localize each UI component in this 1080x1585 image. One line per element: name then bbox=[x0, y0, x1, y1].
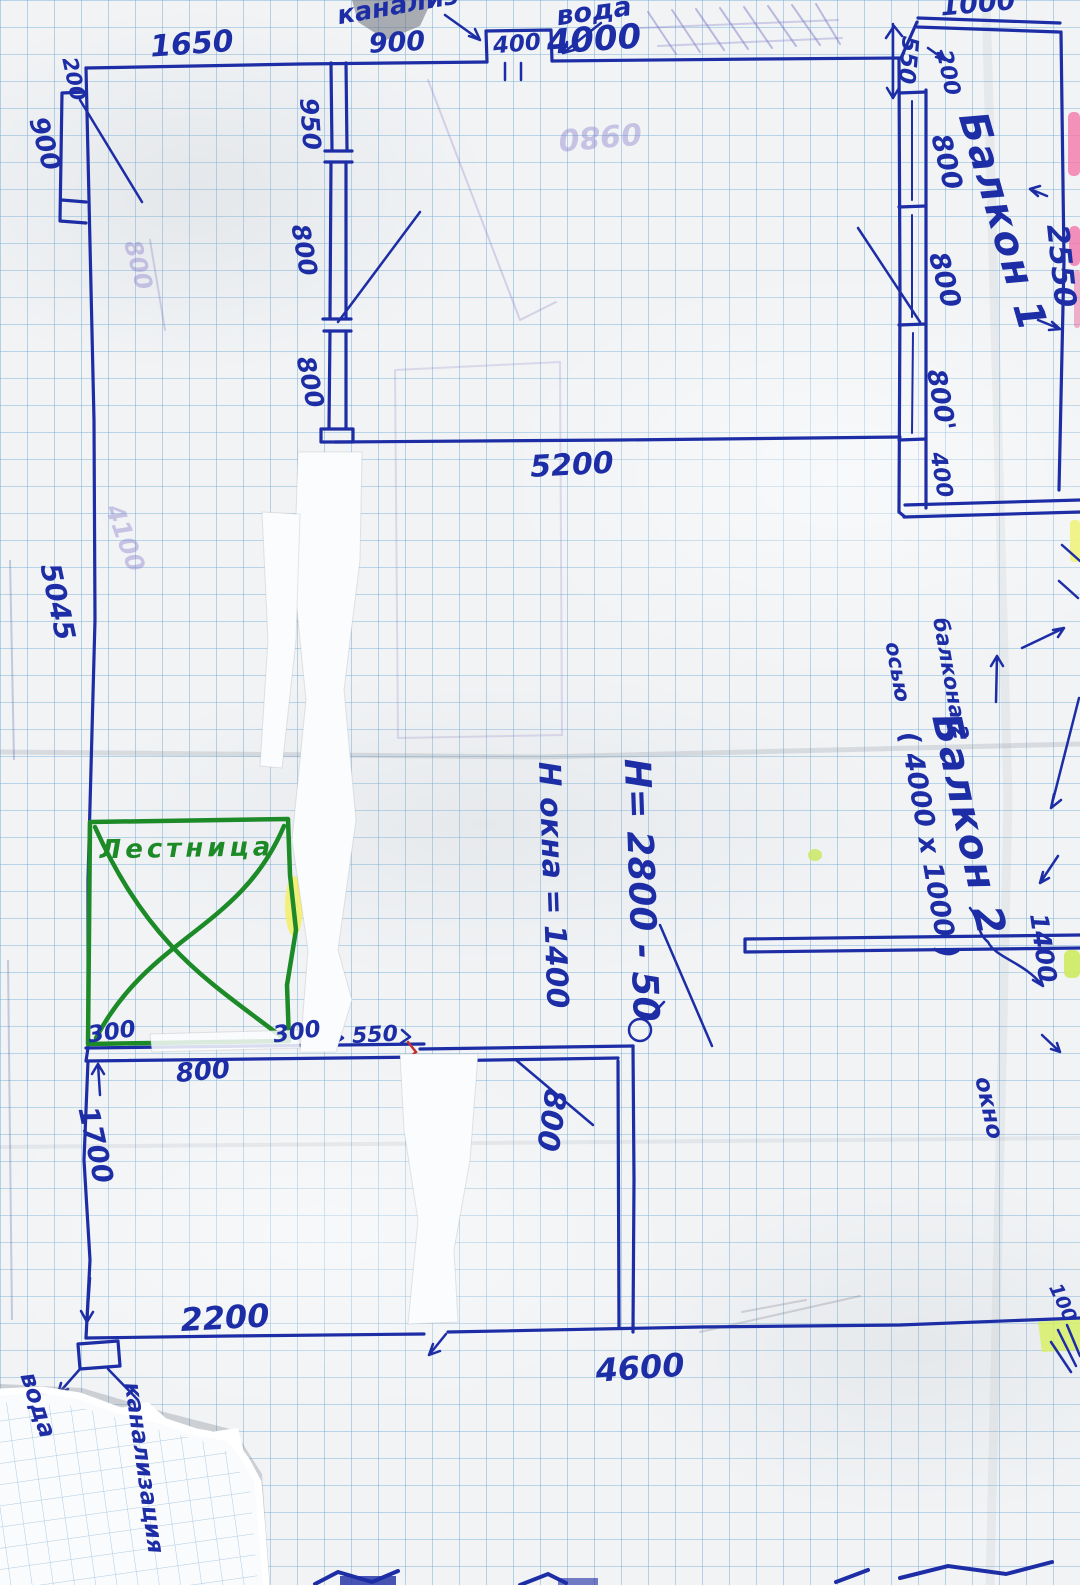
pencil-ghost-lines bbox=[150, 4, 860, 1332]
whiteout-patches bbox=[150, 452, 478, 1324]
bottom-edge-fragments bbox=[315, 1562, 1052, 1585]
floor-plan-drawing bbox=[0, 0, 1080, 1585]
paper-creases bbox=[0, 0, 1080, 1585]
ink-smudge bbox=[352, 0, 432, 40]
torn-corner bbox=[0, 1384, 270, 1585]
graph-paper-sheet: канализ1650900400вода4000100055020080080… bbox=[0, 0, 1080, 1585]
highlighter-marks bbox=[285, 112, 1080, 1352]
staircase-outline bbox=[88, 819, 296, 1044]
ink-pen-walls bbox=[60, 18, 1080, 1369]
